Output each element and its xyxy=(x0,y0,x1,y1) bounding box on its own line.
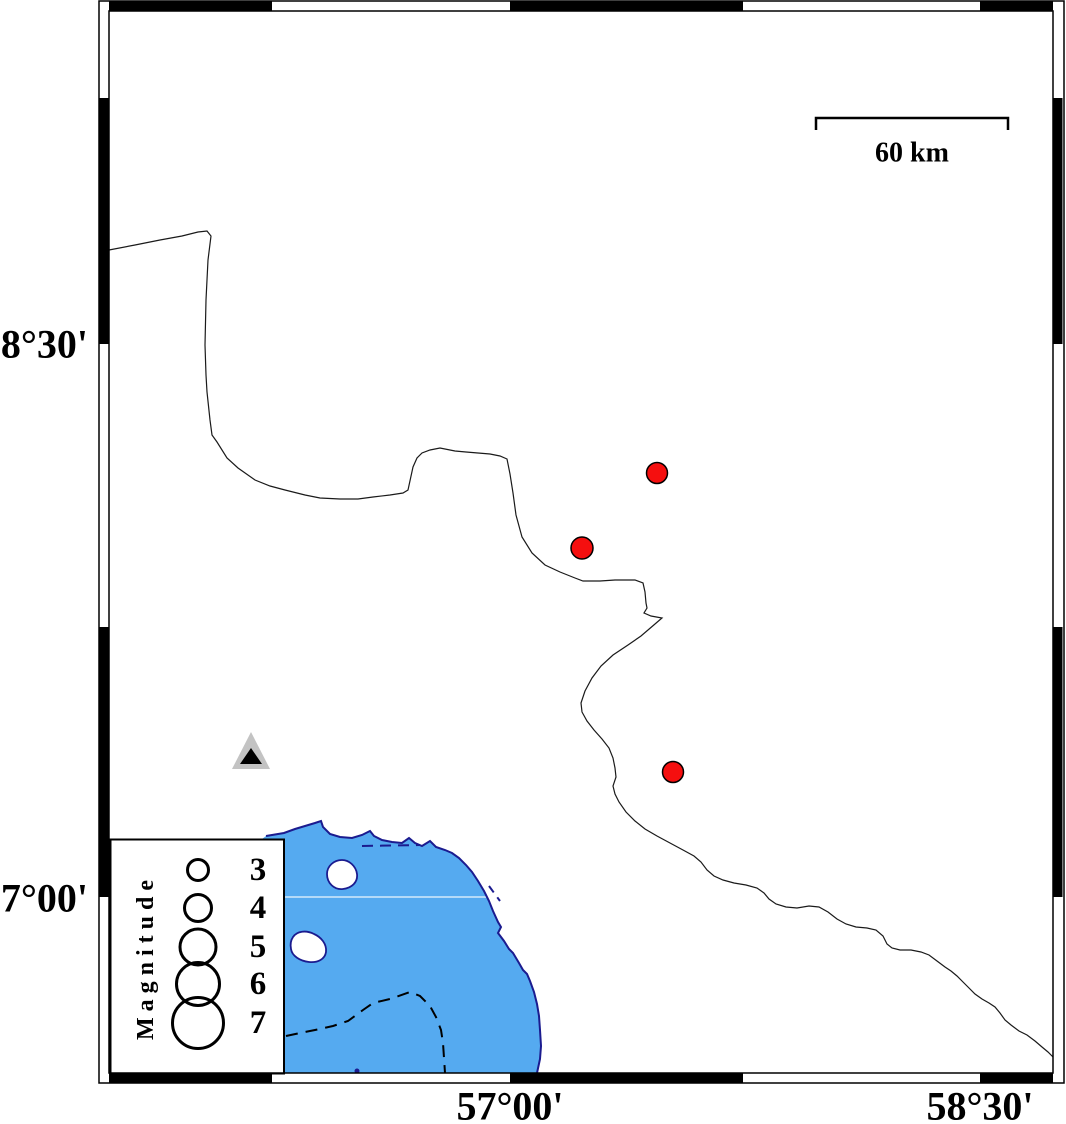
legend-label-mag5: 5 xyxy=(250,929,267,965)
legend-label-mag7: 7 xyxy=(250,1005,267,1041)
lat-label-27-00: 27°00' xyxy=(0,876,88,921)
island-upper xyxy=(327,860,357,889)
seismicity-map-figure: 60 km Magnitude 3 4 5 6 7 28°30' 27°00' … xyxy=(0,0,1066,1124)
frame-tick-segment xyxy=(100,98,109,344)
legend-label-mag6: 6 xyxy=(250,966,267,1002)
lat-label-28-30: 28°30' xyxy=(0,322,88,367)
scale-bar-label: 60 km xyxy=(875,138,949,169)
map-canvas: 60 km Magnitude 3 4 5 6 7 28°30' 27°00' … xyxy=(0,0,1066,1124)
frame-tick-segment xyxy=(1054,98,1063,344)
lon-label-57-00: 57°00' xyxy=(456,1084,563,1124)
legend-label-mag4: 4 xyxy=(250,890,267,926)
legend-label-mag3: 3 xyxy=(250,852,267,888)
earthquake-epicenter-2 xyxy=(571,537,593,559)
magnitude-legend: Magnitude 3 4 5 6 7 xyxy=(111,840,285,1074)
earthquake-epicenter-1 xyxy=(647,463,668,484)
frame-tick-segment xyxy=(100,627,109,897)
frame-tick-segment xyxy=(109,1074,272,1083)
lon-label-58-30: 58°30' xyxy=(926,1084,1033,1124)
legend-title: Magnitude xyxy=(133,874,159,1040)
frame-tick-segment xyxy=(980,1074,1053,1083)
frame-tick-segment xyxy=(980,2,1053,11)
frame-tick-segment xyxy=(109,2,272,11)
earthquake-epicenter-3 xyxy=(663,762,684,783)
frame-tick-segment xyxy=(510,1074,743,1083)
frame-tick-segment xyxy=(1054,627,1063,897)
frame-tick-segment xyxy=(510,2,743,11)
